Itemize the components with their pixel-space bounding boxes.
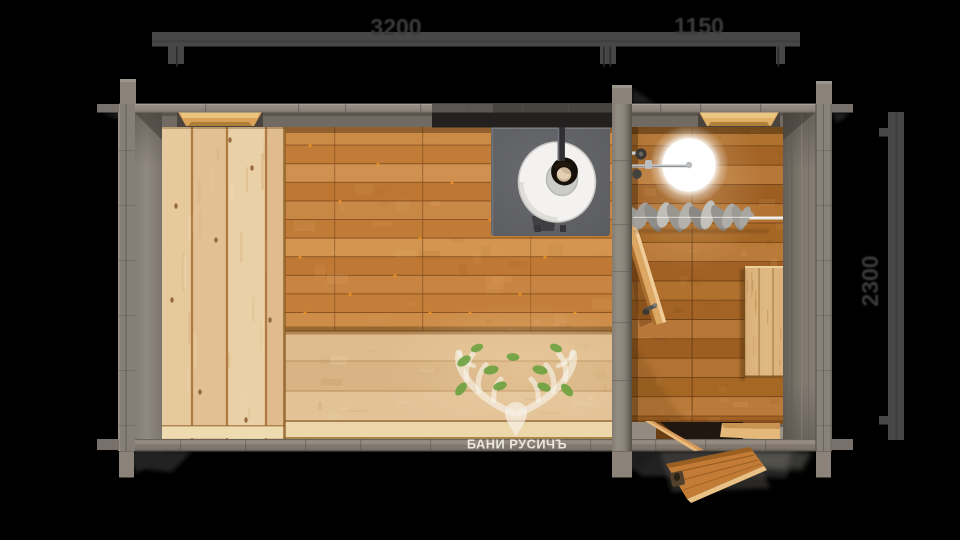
svg-text:1150: 1150	[674, 13, 724, 39]
svg-text:3200: 3200	[370, 14, 421, 40]
svg-text:БАНИ РУСИЧЪ: БАНИ РУСИЧЪ	[467, 437, 567, 452]
svg-text:2300: 2300	[857, 255, 883, 306]
